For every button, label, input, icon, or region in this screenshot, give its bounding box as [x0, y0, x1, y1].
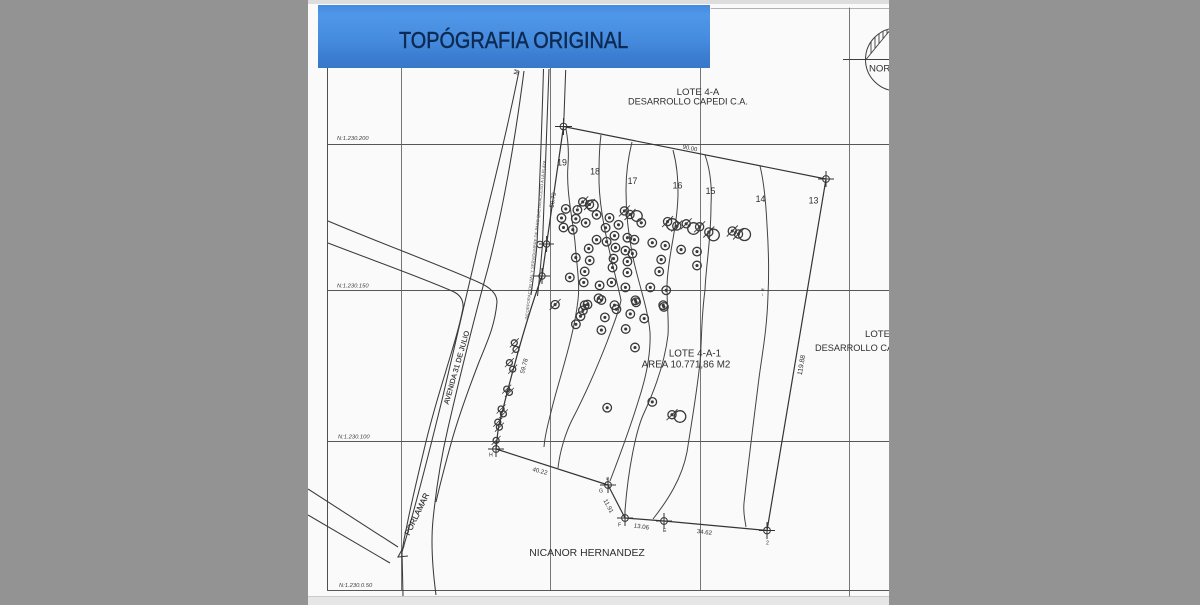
- svg-text:19: 19: [557, 158, 567, 168]
- svg-text:119.88: 119.88: [797, 354, 807, 375]
- svg-text:40.22: 40.22: [532, 466, 549, 477]
- svg-text:v: v: [606, 476, 609, 481]
- svg-text:AREA 10.771,86 M2: AREA 10.771,86 M2: [642, 360, 731, 371]
- svg-text:15: 15: [706, 186, 716, 196]
- svg-text:34.62: 34.62: [696, 528, 713, 537]
- svg-text:14: 14: [756, 194, 766, 204]
- svg-text:N:1.230.100: N:1.230.100: [338, 435, 370, 441]
- svg-text:DESARROLLO CAPEDI C.A.: DESARROLLO CAPEDI C.A.: [815, 343, 889, 353]
- svg-text:50.79: 50.79: [549, 191, 559, 208]
- svg-text:N:1.230.200: N:1.230.200: [337, 136, 369, 142]
- svg-text:M: M: [513, 69, 521, 76]
- svg-text:G: G: [599, 489, 603, 495]
- svg-text:NORTE: NORTE: [869, 64, 889, 75]
- svg-text:16: 16: [673, 181, 683, 191]
- svg-text:H: H: [489, 453, 493, 459]
- svg-text:F: F: [618, 523, 621, 529]
- svg-text:w: w: [761, 287, 765, 292]
- svg-text:N:1.230.150: N:1.230.150: [337, 284, 369, 290]
- svg-text:LOTE 4-A: LOTE 4-A: [865, 329, 889, 340]
- svg-text:E: E: [663, 528, 667, 534]
- svg-text:17: 17: [628, 176, 638, 186]
- svg-text:2: 2: [766, 541, 769, 547]
- svg-text:59.78: 59.78: [519, 357, 530, 374]
- svg-text:I: I: [762, 293, 763, 297]
- svg-text:LOTE 4-A-1: LOTE 4-A-1: [669, 349, 721, 360]
- svg-text:NICANOR HERNANDEZ: NICANOR HERNANDEZ: [529, 548, 645, 559]
- svg-text:13: 13: [809, 196, 819, 206]
- svg-text:N:1.230.0.50: N:1.230.0.50: [339, 583, 373, 589]
- svg-text:13.06: 13.06: [633, 522, 650, 531]
- svg-text:18: 18: [590, 167, 600, 177]
- svg-text:DESARROLLO CAPEDI C.A.: DESARROLLO CAPEDI C.A.: [628, 97, 748, 107]
- svg-text:11.91: 11.91: [601, 498, 614, 515]
